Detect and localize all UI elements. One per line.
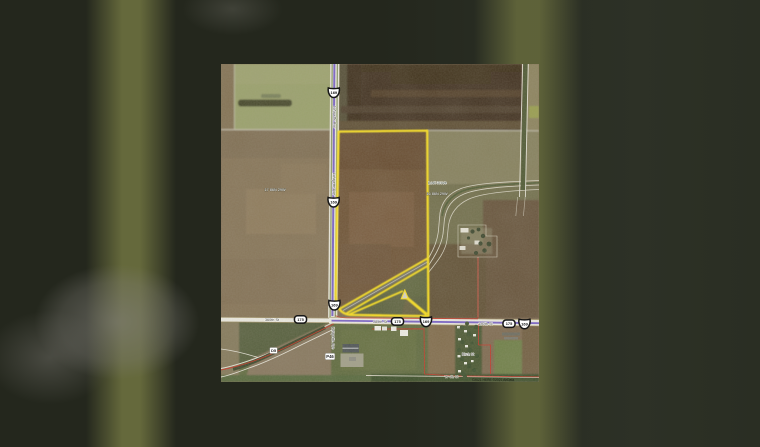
svg-text:169: 169: [331, 302, 338, 307]
svg-text:P46: P46: [326, 354, 334, 359]
svg-text:175: 175: [394, 319, 401, 324]
svg-text:175: 175: [297, 317, 304, 322]
svg-text:Lafayette Ave: Lafayette Ave: [333, 106, 337, 128]
svg-text:Birch St: Birch St: [462, 353, 474, 357]
svg-text:W 4th St: W 4th St: [445, 375, 458, 379]
svg-text:D5: D5: [271, 348, 277, 353]
svg-text:169: 169: [423, 319, 430, 324]
svg-text:180th St: 180th St: [478, 322, 493, 326]
svg-text:17 86N 29W: 17 86N 29W: [264, 188, 286, 192]
svg-text:169: 169: [330, 90, 337, 95]
svg-text:Lafayette Ave: Lafayette Ave: [331, 327, 335, 349]
svg-text:16 86N 29W: 16 86N 29W: [426, 192, 448, 196]
svg-text:Lafayette Ave: Lafayette Ave: [332, 173, 336, 195]
svg-text:169: 169: [330, 199, 337, 204]
svg-text:169: 169: [521, 321, 528, 326]
svg-text:360th St: 360th St: [265, 318, 280, 322]
svg-text:Lost Grove: Lost Grove: [428, 181, 447, 185]
svg-text:180th St: 180th St: [373, 320, 388, 324]
svg-text:©2021 HERE ©2021 AirData: ©2021 HERE ©2021 AirData: [472, 378, 514, 382]
svg-text:175: 175: [506, 321, 513, 326]
